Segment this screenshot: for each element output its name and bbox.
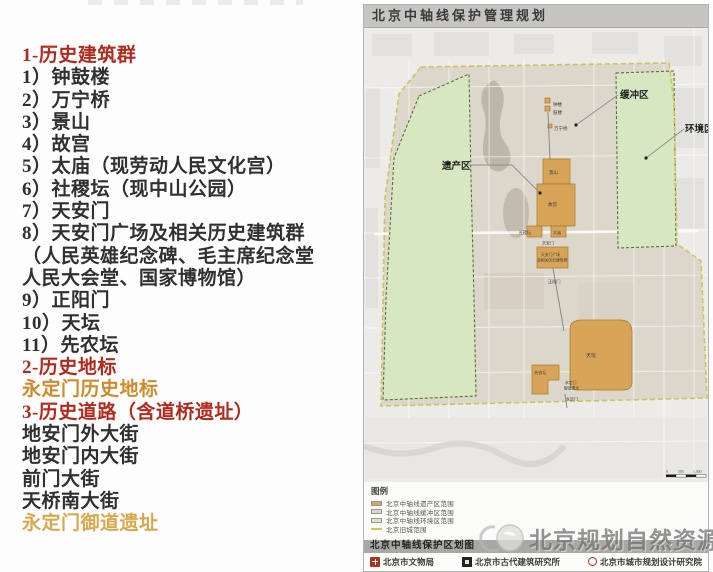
heritage-list: 1-历史建筑群1）钟鼓楼2）万宁桥3）景山4）故宫5）太庙（现劳动人民文化宫）6… [22, 45, 360, 536]
zone-label-huanchongqu: 缓冲区 [620, 89, 649, 101]
scale-0: 0 [666, 470, 668, 474]
map-panel: 北京中轴线保护管理规划 [363, 4, 709, 572]
label-guangchang-1: 天安门广场 [541, 252, 560, 257]
watermark: 北京规划自然资源 [477, 517, 713, 559]
legend-swatch [371, 501, 382, 506]
list-line: 前门大街 [22, 469, 360, 491]
list-line: 地安门外大街 [22, 424, 360, 446]
watermark-text: 北京规划自然资源 [529, 521, 713, 555]
legend-swatch [371, 518, 382, 523]
list-line: 人民大会堂、国家博物馆） [22, 268, 360, 290]
label-gugong: 故宫 [548, 201, 557, 208]
bmpnr-logo-icon [477, 517, 529, 559]
scale-bar [666, 475, 706, 478]
article-image: 1-历史建筑群1）钟鼓楼2）万宁桥3）景山4）故宫5）太庙（现劳动人民文化宫）6… [0, 0, 713, 572]
legend-swatch [371, 509, 382, 514]
list-line: 永定门御道遗址 [22, 513, 360, 535]
list-line: 1）钟鼓楼 [22, 67, 360, 89]
list-line: 11）先农坛 [22, 335, 360, 357]
legend-title: 图例 [371, 485, 708, 497]
list-line: 2）万宁桥 [22, 90, 360, 112]
list-line: 10）天坛 [22, 313, 360, 335]
list-line: 2-历史地标 [22, 357, 360, 379]
zone-label-huanjingqu: 环境区 [685, 123, 708, 135]
label-tiantan: 天坛 [586, 352, 596, 359]
legend-swatch [371, 528, 382, 530]
label-jingshan: 景山 [549, 169, 558, 176]
label-wanningqiao: 万宁桥 [554, 125, 568, 132]
label-shejitan: 社稷坛 [519, 229, 531, 235]
legend-text: 北京旧城范围 [386, 524, 427, 534]
list-line: 地安门内大街 [22, 446, 360, 468]
seal-red-icon [370, 557, 380, 567]
list-line: 3）景山 [22, 112, 360, 134]
list-line: 5）太庙（现劳动人民文化宫） [22, 156, 360, 178]
label-tiananmen: 天安门 [542, 240, 554, 246]
label-xiannongtan: 先农坛 [534, 369, 547, 376]
list-line: 6）社稷坛（现中山公园） [22, 179, 360, 201]
list-line: 9）正阳门 [22, 290, 360, 312]
list-line: 3-历史道路（含道桥遗址） [22, 402, 360, 424]
label-guangchang-2: 及相关历史建筑群 [537, 258, 568, 263]
list-line: 8）天安门广场及相关历史建筑群 [22, 223, 360, 245]
label-yudao-1: 永定门 [565, 380, 577, 385]
protection-zones-map: 遗产区缓冲区环境区钟楼鼓楼万宁桥景山故宫社稷坛太庙天安门天安门广场及相关历史建筑… [364, 28, 708, 482]
zone-label-yichanqu: 遗产区 [441, 160, 471, 172]
list-line: 4）故宫 [22, 134, 360, 156]
square-dark-icon [462, 557, 472, 567]
label-zhonglou: 钟楼 [553, 101, 562, 108]
scale-500: 500 [678, 470, 684, 474]
label-yongdingmen: 永定门 [566, 396, 578, 402]
list-line: 7）天安门 [22, 201, 360, 223]
label-taimiao: 太庙 [553, 229, 561, 235]
map-title: 北京中轴线保护管理规划 [364, 5, 708, 28]
credit-text: 北京市文物局 [383, 556, 434, 568]
label-gulou: 鼓楼 [553, 109, 562, 116]
list-line: 天桥南大街 [22, 491, 360, 513]
list-line: 永定门历史地标 [22, 379, 360, 401]
cropped-text-remnant [88, 0, 303, 5]
label-zhengyangmen: 正阳门 [548, 278, 561, 285]
label-yudao-2: 御道遗址 [564, 386, 579, 391]
credit-item: 北京市文物局 [370, 556, 434, 568]
list-line: （人民英雄纪念碑、毛主席纪念堂 [22, 246, 360, 268]
list-line: 1-历史建筑群 [22, 45, 360, 67]
